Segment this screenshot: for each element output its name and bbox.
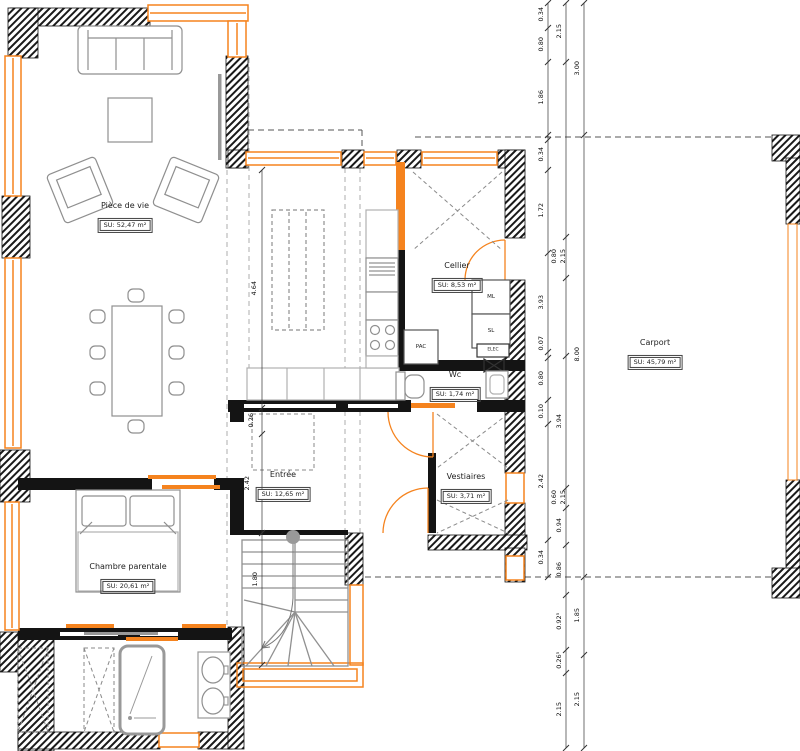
room-label-wc: Wc SU: 1,74 m²: [432, 370, 479, 400]
tv-sideboard: [218, 74, 222, 160]
dim-label: 0.92⁵: [556, 608, 563, 634]
dim-label: 0.26: [248, 407, 255, 433]
dim-label: 0.34: [538, 141, 545, 167]
dim-label: 3.93: [538, 289, 545, 315]
room-label-vestiaires: Vestiaires SU: 3,71 m²: [443, 472, 490, 502]
kitchen-counter: [247, 368, 399, 400]
dim-label: 2.15: [556, 696, 563, 722]
floor-plan: Pièce de vie SU: 52,47 m² Cellier SU: 8,…: [0, 0, 800, 751]
dim-label: 0.26⁵: [556, 647, 563, 673]
dim-label: 2.42: [538, 468, 545, 494]
dim-label: 3.94: [556, 408, 563, 434]
armchair: [152, 156, 220, 224]
dim-label: 3.00: [574, 55, 581, 81]
stair-start-post: [286, 530, 300, 544]
toilet: [396, 372, 405, 400]
dim-label: 1.72: [538, 197, 545, 223]
dim-label: 1.80: [252, 566, 259, 592]
dim-label: 0.10: [538, 398, 545, 424]
sliding-rail: [84, 632, 158, 635]
shower: [120, 646, 164, 734]
dining-table: [112, 306, 162, 416]
dim-label: 2.42: [244, 470, 251, 496]
elec-label: ELEC: [487, 348, 498, 353]
dim-label: 2.15: [574, 686, 581, 712]
dim-label: 0.34: [538, 1, 545, 27]
dim-label: 0.80: [551, 243, 558, 269]
dim-label: 0.86: [556, 556, 563, 582]
dim-label: 2.15: [556, 18, 563, 44]
dim-label: 0.34: [538, 544, 545, 570]
plan-drawing: [0, 0, 800, 751]
room-label-chambre-parentale: Chambre parentale SU: 20,61 m²: [89, 562, 166, 592]
dim-label: 0.94: [556, 512, 563, 538]
stairs: [242, 530, 348, 666]
ml-label: ML: [487, 294, 495, 300]
sofa: [78, 26, 182, 74]
dim-label: 0.80: [538, 31, 545, 57]
dim-label: 1.86: [538, 84, 545, 110]
room-label-carport: Carport SU: 45,79 m²: [630, 338, 681, 368]
room-label-piece-de-vie: Pièce de vie SU: 52,47 m²: [100, 201, 151, 231]
dim-label: 0.07: [538, 330, 545, 356]
dim-label: 4.64: [251, 275, 258, 301]
dim-label: 1.85: [574, 602, 581, 628]
dim-label: 2.15: [560, 243, 567, 269]
dim-label: 8.00: [574, 341, 581, 367]
dim-label: 0.60: [551, 484, 558, 510]
cooktop: [366, 320, 398, 356]
dim-label: 0.80: [538, 365, 545, 391]
coffee-table: [108, 98, 152, 142]
dim-label: 2.15: [560, 484, 567, 510]
pac-label: PAC: [416, 344, 426, 350]
room-label-cellier: Cellier SU: 8,53 m²: [434, 261, 481, 291]
sl-label: SL: [488, 328, 495, 334]
room-label-entree: Entrée SU: 12,65 m²: [258, 470, 309, 500]
kitchen-island: [272, 210, 324, 330]
